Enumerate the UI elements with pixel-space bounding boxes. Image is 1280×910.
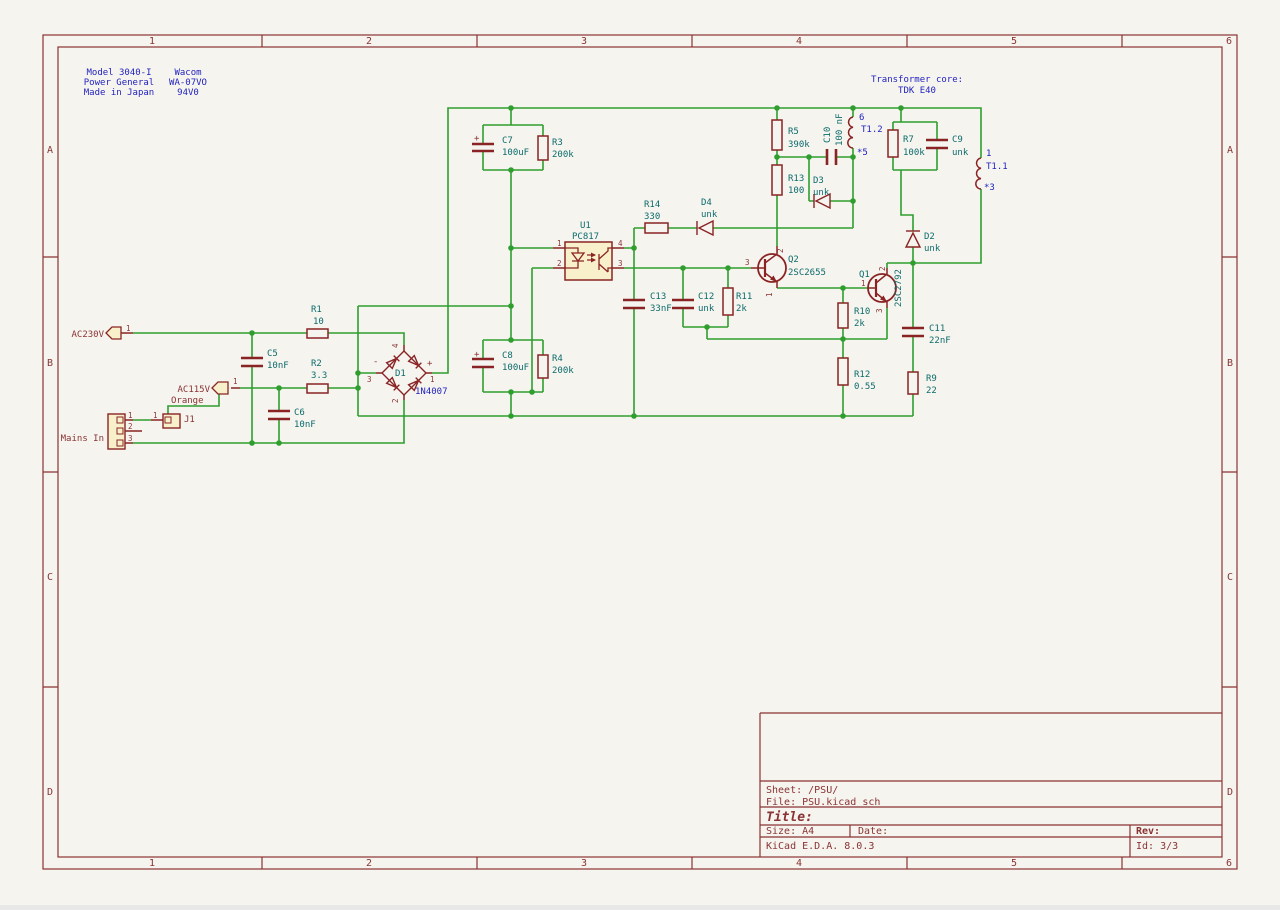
schematic-canvas[interactable]: Sheet: /PSU/ File: PSU.kicad_sch Title: … xyxy=(0,0,1280,905)
connector-mains-in[interactable] xyxy=(108,414,125,449)
wire-c8r4-group[interactable] xyxy=(483,340,543,416)
val-r9: 22 xyxy=(926,386,937,396)
ref-r9: R9 xyxy=(926,374,937,384)
pin-q2-1: 1 xyxy=(765,292,774,297)
val-r7: 100k xyxy=(903,148,925,158)
pin-u1-4: 4 xyxy=(618,239,623,248)
val-r13: 100 xyxy=(788,186,804,196)
note-vendor-1: Wacom xyxy=(174,68,201,78)
pin-j1-1: 1 xyxy=(153,411,158,420)
val-r12: 0.55 xyxy=(854,382,876,392)
border-row-left-A: A xyxy=(47,145,53,156)
ref-c11: C11 xyxy=(929,324,945,334)
pin-mains-3: 3 xyxy=(128,434,133,443)
border-col-top-6: 6 xyxy=(1226,36,1232,47)
ref-c10: C10 xyxy=(823,127,833,143)
border-col-bottom-4: 4 xyxy=(796,858,802,869)
border-col-top-5: 5 xyxy=(1011,36,1017,47)
val-r10: 2k xyxy=(854,319,865,329)
val-u1: PC817 xyxy=(572,232,599,242)
ref-c7: C7 xyxy=(502,136,513,146)
titleblock-sheet: Sheet: /PSU/ xyxy=(766,785,838,796)
border-col-top-1: 1 xyxy=(149,36,155,47)
pin-q2-2: 2 xyxy=(776,248,785,253)
val-c10: 100 nF xyxy=(835,113,845,146)
val-c8: 100uF xyxy=(502,363,529,373)
optocoupler-u1[interactable] xyxy=(565,242,612,280)
val-q1: 2SC2792 xyxy=(894,269,904,307)
title-block: Sheet: /PSU/ File: PSU.kicad_sch Title: … xyxy=(760,713,1222,857)
ref-j1: J1 xyxy=(184,415,195,425)
pin-d1-3: 3 xyxy=(367,375,372,384)
val-c9: unk xyxy=(952,148,969,158)
val-c5: 10nF xyxy=(267,361,289,371)
titleblock-size: Size: A4 xyxy=(766,826,814,837)
border-row-right-D: D xyxy=(1227,787,1233,798)
wire-r7c9-group[interactable] xyxy=(893,108,937,231)
note-vendor-3: 94V0 xyxy=(177,88,199,98)
border-row-left-D: D xyxy=(47,787,53,798)
val-r14: 330 xyxy=(644,212,660,222)
ref-r12: R12 xyxy=(854,370,870,380)
val-r1: 10 xyxy=(313,317,324,327)
schematic-sheet: Sheet: /PSU/ File: PSU.kicad_sch Title: … xyxy=(0,0,1280,905)
netlabel-ac115v: AC115V xyxy=(177,385,210,395)
diode-d2 xyxy=(906,231,920,247)
val-d4: unk xyxy=(701,210,718,220)
border-row-left-C: C xyxy=(47,572,53,583)
wire-ac230-row[interactable] xyxy=(133,333,404,345)
ref-d4: D4 xyxy=(701,198,712,208)
note-model-1: Model 3040-I xyxy=(86,68,151,78)
titleblock-id: Id: 3/3 xyxy=(1136,841,1178,852)
val-r3: 200k xyxy=(552,150,574,160)
pin-t12-5: *5 xyxy=(857,148,868,158)
ref-r1: R1 xyxy=(311,305,322,315)
ref-r2: R2 xyxy=(311,359,322,369)
ref-r7: R7 xyxy=(903,135,914,145)
capacitor-c6 xyxy=(268,411,290,419)
val-q2: 2SC2655 xyxy=(788,268,826,278)
connector-j1[interactable] xyxy=(163,414,180,428)
titleblock-title: Title: xyxy=(766,810,813,825)
global-label-ac230v[interactable] xyxy=(106,327,121,339)
capacitor-c13 xyxy=(623,300,645,308)
note-vendor-2: WA-07VO xyxy=(169,78,207,88)
diode-d4 xyxy=(697,221,713,235)
pin-d1-1: 1 xyxy=(430,375,435,384)
note-transformer-2: TDK E40 xyxy=(898,86,936,96)
note-model-2: Power General xyxy=(84,78,154,88)
pin-t11-3: *3 xyxy=(984,183,995,193)
pin-q1-3: 3 xyxy=(875,308,884,313)
ref-r11: R11 xyxy=(736,292,752,302)
wire-u1-pin4[interactable] xyxy=(624,228,645,416)
border-col-bottom-6: 6 xyxy=(1226,858,1232,869)
pin-t12-6: 6 xyxy=(859,113,864,123)
pin-ac230v-1: 1 xyxy=(126,324,131,333)
resistor-r14-body xyxy=(645,223,668,233)
ref-r5: R5 xyxy=(788,127,799,137)
sym-c8-plus: + xyxy=(474,350,480,360)
label-mains-in: Mains In xyxy=(61,434,104,444)
ref-t11: T1.1 xyxy=(986,162,1008,172)
capacitor-c11 xyxy=(902,328,924,336)
border-row-left-B: B xyxy=(47,358,53,369)
capacitor-c12 xyxy=(672,300,694,308)
titleblock-rev: Rev: xyxy=(1136,826,1160,837)
ref-c13: C13 xyxy=(650,292,666,302)
val-c6: 10nF xyxy=(294,420,316,430)
sym-d1-minus: - xyxy=(373,357,378,367)
sym-c7-plus: + xyxy=(474,134,480,144)
ref-r4: R4 xyxy=(552,354,563,364)
ref-q2: Q2 xyxy=(788,255,799,265)
netlabel-ac230v: AC230V xyxy=(71,330,104,340)
pin-u1-1: 1 xyxy=(557,239,562,248)
pin-t11-1: 1 xyxy=(986,149,991,159)
ref-c5: C5 xyxy=(267,349,278,359)
resistor-r11-body xyxy=(723,288,733,315)
ref-r13: R13 xyxy=(788,174,804,184)
resistor-r7-body xyxy=(888,130,898,157)
border-row-right-A: A xyxy=(1227,145,1233,156)
sheet-border xyxy=(43,35,1237,869)
resistor-r4-body xyxy=(538,355,548,378)
inductor-t1-1[interactable] xyxy=(976,158,981,189)
netlabel-orange: Orange xyxy=(171,396,204,406)
capacitor-c5 xyxy=(241,358,263,366)
pin-q2-3: 3 xyxy=(745,258,750,267)
ref-r3: R3 xyxy=(552,138,563,148)
resistor-r12-body xyxy=(838,358,848,385)
ref-d3: D3 xyxy=(813,176,824,186)
capacitor-c7 xyxy=(472,144,494,151)
val-d1: 1N4007 xyxy=(415,387,448,397)
pin-u1-2: 2 xyxy=(557,259,562,268)
border-col-top-2: 2 xyxy=(366,36,372,47)
titleblock-file: File: PSU.kicad_sch xyxy=(766,797,880,808)
border-col-bottom-3: 3 xyxy=(581,858,587,869)
wire-mid-vertical[interactable] xyxy=(358,306,511,416)
pin-ac115v-1: 1 xyxy=(233,377,238,386)
note-model-3: Made in Japan xyxy=(84,88,154,98)
resistor-r3-body xyxy=(538,136,548,160)
resistor-r10-body xyxy=(838,303,848,328)
val-d2: unk xyxy=(924,244,941,254)
resistor-r1-body xyxy=(307,329,328,338)
resistor-r2-body xyxy=(307,384,328,393)
val-c7: 100uF xyxy=(502,148,529,158)
capacitor-c8 xyxy=(472,359,494,367)
val-r11: 2k xyxy=(736,304,747,314)
wire-u1-pin2[interactable] xyxy=(532,268,553,392)
resistor-r5-body xyxy=(772,120,782,150)
border-col-bottom-2: 2 xyxy=(366,858,372,869)
resistor-r13-body xyxy=(772,165,782,195)
global-label-ac115v[interactable] xyxy=(212,382,228,394)
border-col-bottom-1: 1 xyxy=(149,858,155,869)
note-transformer-1: Transformer core: xyxy=(871,75,963,85)
inductor-t1-2[interactable] xyxy=(848,117,853,148)
pin-q1-2: 2 xyxy=(878,266,887,271)
resistor-r9-body xyxy=(908,372,918,394)
sym-d1-plus: + xyxy=(427,359,433,369)
ref-c8: C8 xyxy=(502,351,513,361)
pin-d1-4: 4 xyxy=(391,343,400,348)
pin-stubs xyxy=(121,248,876,443)
ref-r10: R10 xyxy=(854,307,870,317)
ref-d2: D2 xyxy=(924,232,935,242)
capacitor-c9 xyxy=(926,140,948,148)
border-row-right-C: C xyxy=(1227,572,1233,583)
ref-u1: U1 xyxy=(580,221,591,231)
pin-mains-1: 1 xyxy=(128,411,133,420)
val-r2: 3.3 xyxy=(311,371,327,381)
titleblock-tool: KiCad E.D.A. 8.0.3 xyxy=(766,841,874,852)
ref-c9: C9 xyxy=(952,135,963,145)
pin-d1-2: 2 xyxy=(391,398,400,403)
border-col-bottom-5: 5 xyxy=(1011,858,1017,869)
ref-c6: C6 xyxy=(294,408,305,418)
ref-d1: D1 xyxy=(395,369,406,379)
border-labels-layer: 112233445566AABBCCDD xyxy=(47,36,1233,869)
val-r4: 200k xyxy=(552,366,574,376)
capacitor-c10 xyxy=(827,149,836,165)
val-r5: 390k xyxy=(788,140,810,150)
ref-c12: C12 xyxy=(698,292,714,302)
pin-u1-3: 3 xyxy=(618,259,623,268)
val-c12: unk xyxy=(698,304,715,314)
ref-r14: R14 xyxy=(644,200,660,210)
border-col-top-3: 3 xyxy=(581,36,587,47)
diodes[interactable] xyxy=(697,194,920,247)
titleblock-date: Date: xyxy=(858,826,888,837)
val-d3: unk xyxy=(813,188,830,198)
val-c13: 33nF xyxy=(650,304,672,314)
ref-t12: T1.2 xyxy=(861,125,883,135)
pin-mains-2: 2 xyxy=(128,422,133,431)
border-row-right-B: B xyxy=(1227,358,1233,369)
pin-q1-1: 1 xyxy=(861,279,866,288)
border-col-top-4: 4 xyxy=(796,36,802,47)
val-c11: 22nF xyxy=(929,336,951,346)
